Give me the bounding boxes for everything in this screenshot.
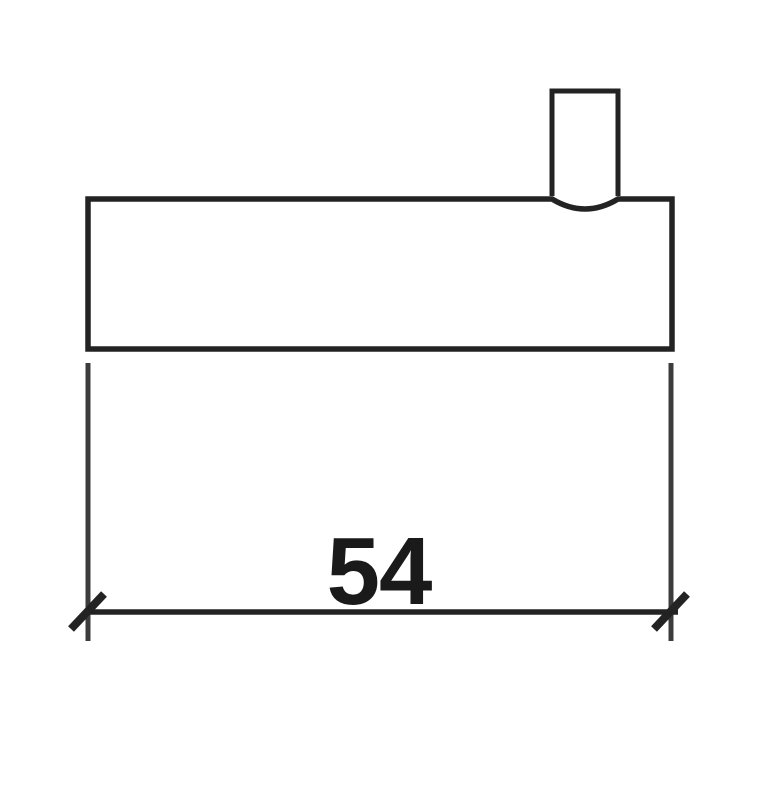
main-body-outline bbox=[88, 199, 672, 349]
drawing-canvas: 54 bbox=[0, 0, 776, 800]
peg-tab-outline bbox=[552, 91, 618, 196]
technical-drawing: 54 bbox=[0, 0, 776, 800]
dimension-value: 54 bbox=[327, 518, 432, 625]
